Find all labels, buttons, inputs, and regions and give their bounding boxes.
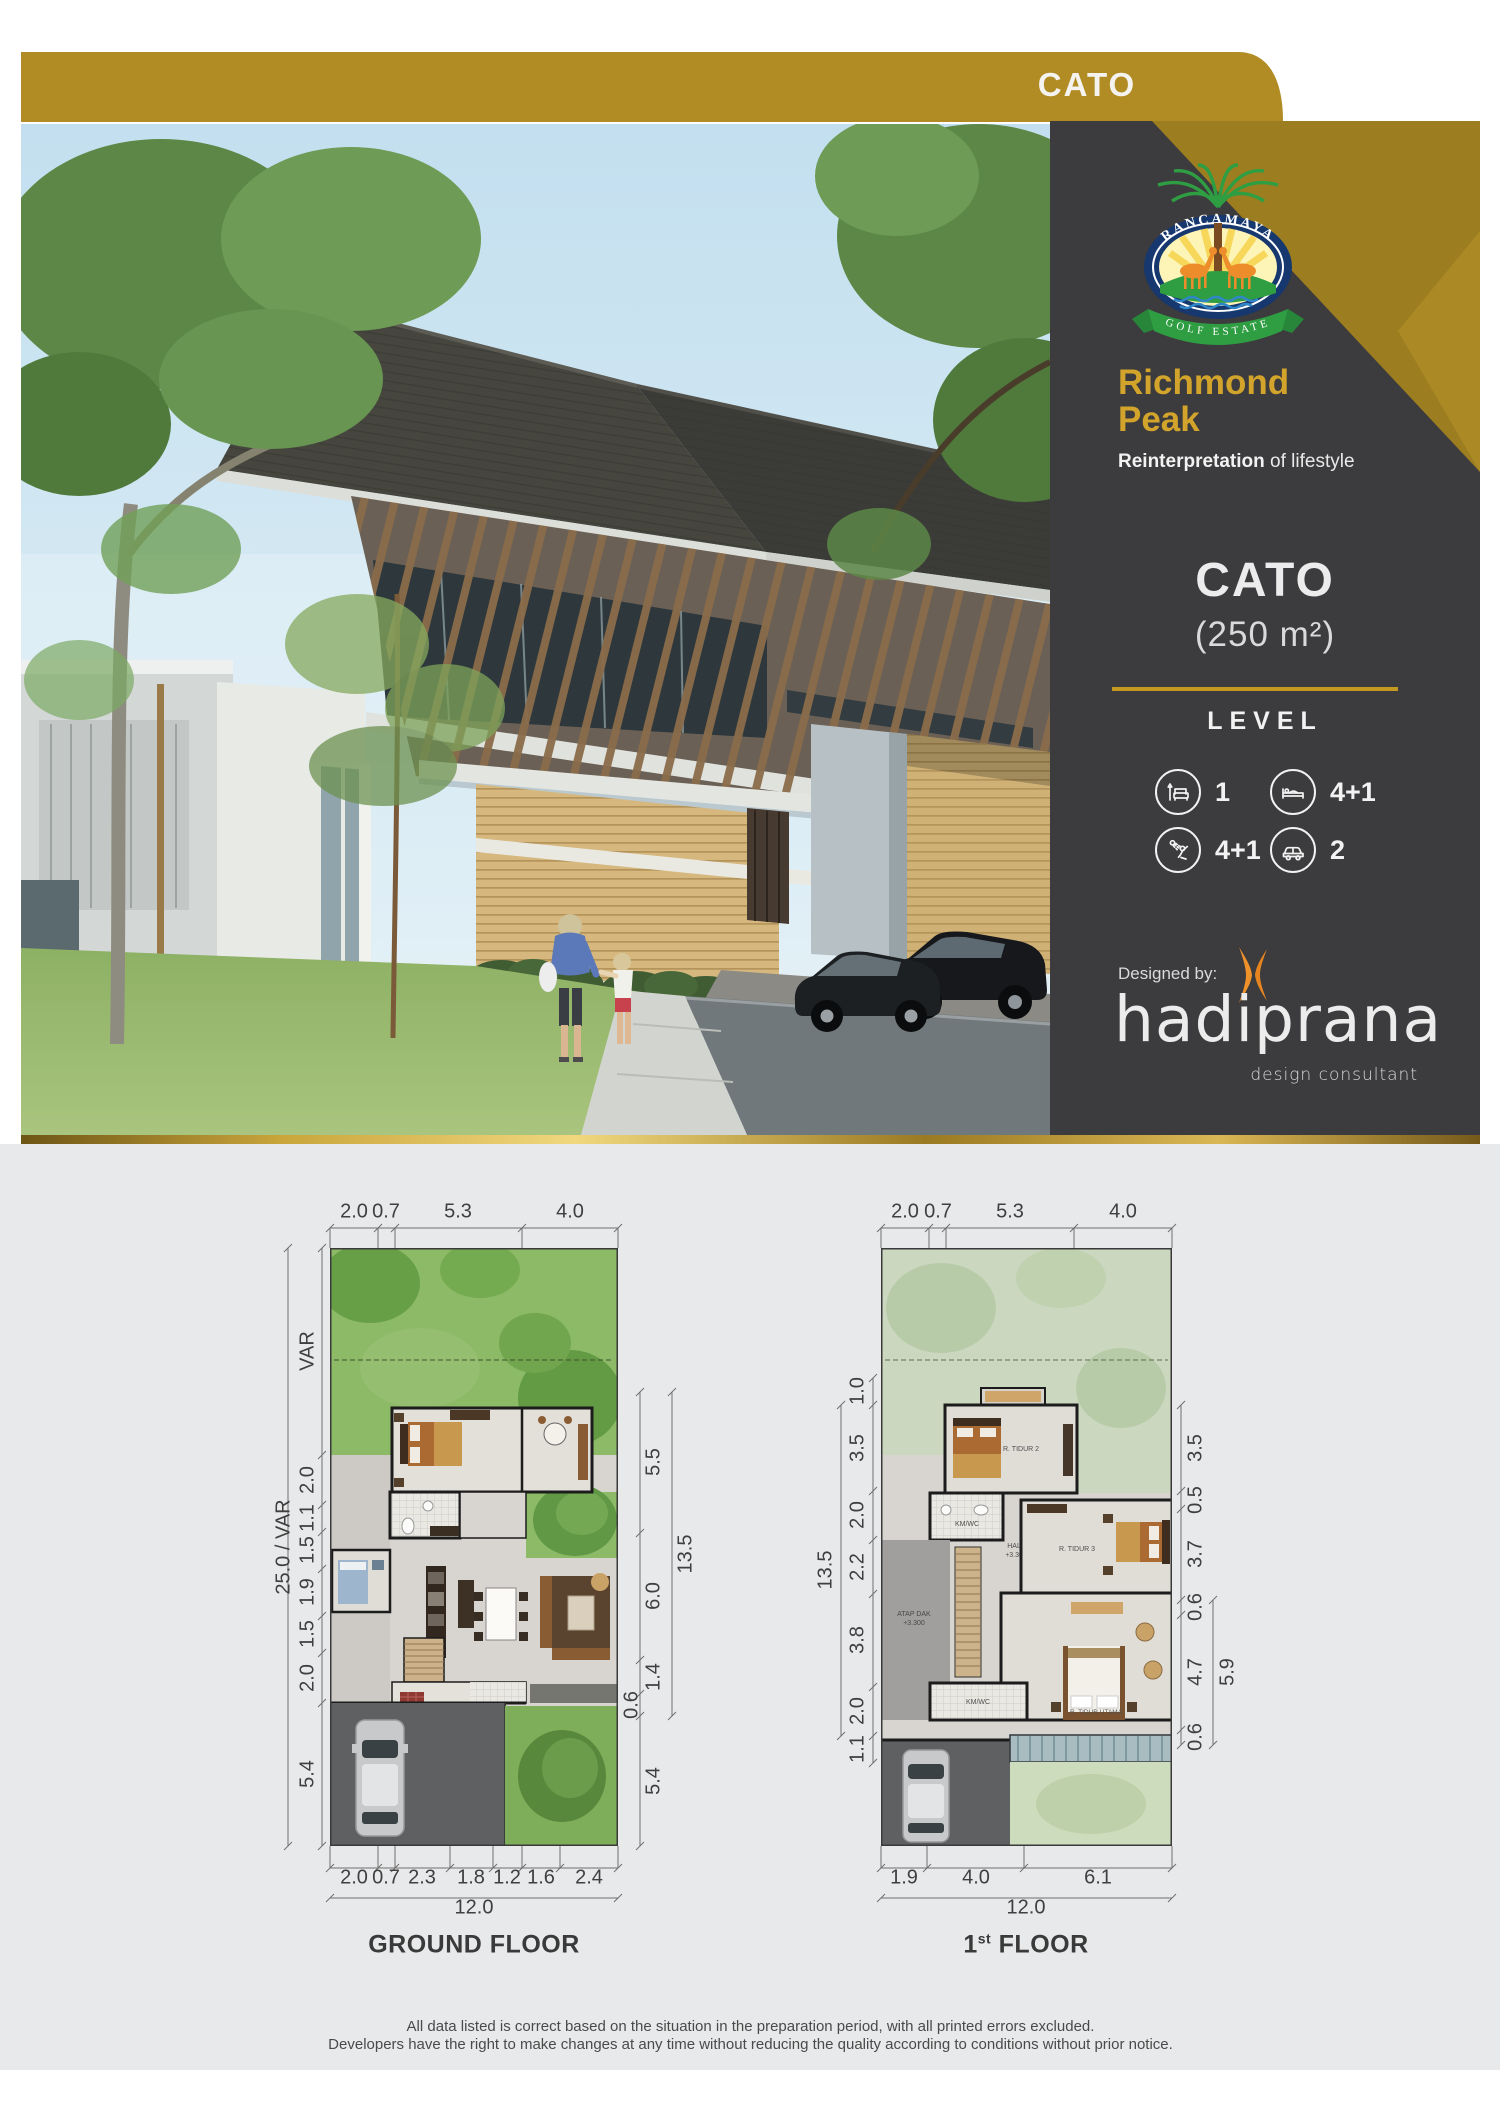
dim-label: 1.2 bbox=[493, 1867, 521, 1890]
level-value: 2 bbox=[1330, 835, 1345, 866]
dim-label: 2.0 bbox=[891, 1201, 919, 1224]
dim-total-label: 25.0 / VAR bbox=[273, 1499, 296, 1594]
designed-by-label: Designed by: bbox=[1118, 964, 1217, 984]
dim-label: 3.7 bbox=[1185, 1540, 1208, 1568]
level-value: 4+1 bbox=[1215, 835, 1261, 866]
dim-label: 2.4 bbox=[575, 1867, 603, 1890]
dim-label: 1.9 bbox=[297, 1578, 320, 1606]
dim-label: 4.0 bbox=[1109, 1201, 1137, 1224]
first-floor-title: 1st FLOOR bbox=[963, 1930, 1088, 1959]
level-item-bedroom: 4+1 bbox=[1270, 769, 1376, 815]
dim-label: 2.0 bbox=[847, 1501, 870, 1529]
hadiprana-wordmark: hadiprana bbox=[1114, 983, 1424, 1056]
dim-label: 2.0 bbox=[847, 1697, 870, 1725]
dim-label: 4.0 bbox=[962, 1867, 990, 1890]
level-value: 4+1 bbox=[1330, 777, 1376, 808]
dimension-linework bbox=[0, 1144, 1500, 2070]
dim-label: 0.7 bbox=[924, 1201, 952, 1224]
ground-floor-title: GROUND FLOOR bbox=[368, 1931, 580, 1960]
dim-label: 0.7 bbox=[372, 1867, 400, 1890]
gold-separator-strip bbox=[21, 1135, 1480, 1144]
rancamaya-estate-logo: RANCAMAYA GOLF ESTATE bbox=[1118, 161, 1318, 361]
dim-label: 3.5 bbox=[847, 1434, 870, 1462]
dim-label: 0.6 bbox=[1185, 1593, 1208, 1621]
dim-total-label: 13.5 bbox=[675, 1535, 698, 1574]
dim-label: 1.6 bbox=[527, 1867, 555, 1890]
dim-label: 0.6 bbox=[621, 1691, 644, 1719]
dim-label: 1.1 bbox=[847, 1735, 870, 1763]
dim-total-label: 12.0 bbox=[455, 1897, 494, 1920]
dim-total-label: 5.9 bbox=[1217, 1658, 1240, 1686]
dim-label: 2.0 bbox=[297, 1664, 320, 1692]
sofa-icon bbox=[1155, 769, 1201, 815]
project-tagline: Reinterpretation of lifestyle bbox=[1118, 451, 1355, 473]
footer-disclaimer-line1: All data listed is correct based on the … bbox=[21, 2018, 1480, 2035]
dim-label: 4.0 bbox=[556, 1201, 584, 1224]
dim-total-label: 13.5 bbox=[815, 1551, 838, 1590]
dim-label: 1.0 bbox=[847, 1377, 870, 1405]
dim-label: 6.0 bbox=[643, 1582, 666, 1610]
hero-rendering bbox=[21, 124, 1050, 1135]
dim-label: 5.3 bbox=[996, 1201, 1024, 1224]
level-item-garage: 2 bbox=[1270, 827, 1345, 873]
dim-label: 5.4 bbox=[297, 1760, 320, 1788]
dim-label: 1.4 bbox=[643, 1663, 666, 1691]
dim-label: 2.0 bbox=[340, 1201, 368, 1224]
unit-name: CATO bbox=[1050, 553, 1480, 608]
level-item-bathroom: 4+1 bbox=[1155, 827, 1261, 873]
dim-total-label: 12.0 bbox=[1007, 1897, 1046, 1920]
project-title-line2: Peak bbox=[1118, 401, 1289, 438]
car-icon bbox=[1270, 827, 1316, 873]
dim-label: 3.5 bbox=[1185, 1434, 1208, 1462]
dim-label: VAR bbox=[297, 1331, 320, 1371]
project-title: Richmond Peak bbox=[1118, 364, 1289, 438]
dim-label: 5.3 bbox=[444, 1201, 472, 1224]
level-heading: LEVEL bbox=[1050, 707, 1480, 736]
dim-label: 1.5 bbox=[297, 1620, 320, 1648]
info-panel: RANCAMAYA GOLF ESTATE Richmond Peak Rein… bbox=[1050, 121, 1480, 1135]
dim-label: 0.6 bbox=[1185, 1723, 1208, 1751]
level-item-living: 1 bbox=[1155, 769, 1230, 815]
dim-label: 6.1 bbox=[1084, 1867, 1112, 1890]
dim-label: 1.5 bbox=[297, 1536, 320, 1564]
dim-label: 3.8 bbox=[847, 1626, 870, 1654]
dim-label: 5.5 bbox=[643, 1448, 666, 1476]
dim-label: 5.4 bbox=[643, 1767, 666, 1795]
shower-icon bbox=[1155, 827, 1201, 873]
bed-icon bbox=[1270, 769, 1316, 815]
unit-area: (250 m²) bbox=[1050, 615, 1480, 655]
dim-label: 2.0 bbox=[340, 1867, 368, 1890]
project-title-line1: Richmond bbox=[1118, 364, 1289, 401]
dim-label: 2.0 bbox=[297, 1466, 320, 1494]
dim-label: 1.1 bbox=[297, 1504, 320, 1532]
dim-label: 0.7 bbox=[372, 1201, 400, 1224]
footer-disclaimer-line2: Developers have the right to make change… bbox=[21, 2036, 1480, 2053]
level-value: 1 bbox=[1215, 777, 1230, 808]
dim-label: 2.3 bbox=[408, 1867, 436, 1890]
dim-label: 4.7 bbox=[1185, 1658, 1208, 1686]
dim-label: 1.9 bbox=[890, 1867, 918, 1890]
dim-label: 2.2 bbox=[847, 1553, 870, 1581]
dim-label: 1.8 bbox=[457, 1867, 485, 1890]
gold-divider bbox=[1112, 687, 1398, 691]
banner-unit-label: CATO bbox=[1035, 66, 1139, 104]
hadiprana-subtitle: design consultant bbox=[1114, 1065, 1418, 1085]
dim-label: 0.5 bbox=[1185, 1486, 1208, 1514]
